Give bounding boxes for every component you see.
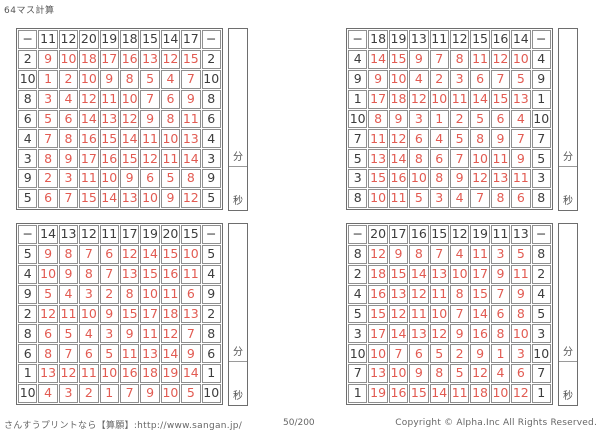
row-header-cell: 4 [348,285,367,304]
answer-cell: 12 [38,305,57,324]
answer-cell: 18 [470,384,489,403]
answer-cell: 9 [140,110,159,129]
answer-cell: 8 [470,129,489,148]
answer-cell: 13 [430,265,449,284]
answer-cell: 13 [389,285,408,304]
col-header-cell: 16 [491,30,510,49]
answer-cell: 15 [368,169,387,188]
answer-cell: 8 [450,50,469,69]
calc-grid: −1112201918151417−2910181716131215210121… [16,28,223,210]
seconds-label: 秒 [233,192,243,207]
row-header-cell: 1 [348,90,367,109]
col-header-cell: 18 [120,30,139,49]
answer-cell: 13 [120,189,139,208]
answer-cell: 11 [470,245,489,264]
row-header-cell: 9 [18,169,37,188]
answer-cell: 9 [38,245,57,264]
answer-cell: 6 [181,285,200,304]
col-header-cell: 17 [120,225,139,244]
copyright-notice: Copyright © Alpha.Inc All Rights Reserve… [395,418,597,428]
page-number: 50/200 [283,418,315,428]
corner-cell: − [348,225,367,244]
col-header-cell: 13 [511,225,530,244]
answer-cell: 7 [120,384,139,403]
answer-cell: 13 [140,344,159,363]
answer-cell: 10 [79,305,98,324]
col-header-cell: 13 [409,30,428,49]
answer-cell: 4 [450,189,469,208]
col-header-cell: 14 [38,225,57,244]
answer-cell: 15 [491,90,510,109]
answer-cell: 18 [140,364,159,383]
answer-cell: 10 [100,169,119,188]
answer-cell: 12 [470,169,489,188]
calc-grid: −1413121117192015−5987612141510541098713… [16,223,223,405]
timer-seconds-cell: 秒 [559,361,577,405]
row-header-cell: 10 [348,110,367,129]
col-header-cell: 17 [181,30,200,49]
row-header-cell: 8 [532,245,551,264]
answer-cell: 1 [38,70,57,89]
answer-cell: 8 [430,364,449,383]
answer-cell: 5 [181,384,200,403]
answer-cell: 10 [161,129,180,148]
answer-cell: 6 [491,110,510,129]
answer-cell: 9 [38,50,57,69]
timer-minutes-cell: 分 [559,29,577,166]
answer-cell: 11 [100,90,119,109]
answer-cell: 17 [100,50,119,69]
answer-cell: 16 [389,169,408,188]
row-header-cell: 2 [348,265,367,284]
answer-cell: 17 [470,265,489,284]
answer-cell: 13 [368,149,387,168]
answer-cell: 12 [120,245,139,264]
answer-cell: 10 [450,265,469,284]
row-header-cell: 5 [532,305,551,324]
row-header-cell: 5 [202,245,221,264]
col-header-cell: 20 [368,225,387,244]
row-header-cell: 6 [18,110,37,129]
answer-cell: 11 [161,285,180,304]
minutes-label: 分 [563,148,573,163]
answer-cell: 1 [100,384,119,403]
row-header-cell: 4 [18,129,37,148]
answer-cell: 13 [181,129,200,148]
answer-cell: 9 [120,169,139,188]
col-header-cell: 14 [161,30,180,49]
answer-cell: 15 [140,265,159,284]
answer-cell: 9 [140,384,159,403]
answer-cell: 16 [120,50,139,69]
answer-cell: 9 [470,344,489,363]
calc-grid: −2017161512191113−8129874113582181514131… [346,223,553,405]
answer-cell: 4 [161,70,180,89]
col-header-cell: 15 [470,30,489,49]
answer-cell: 5 [511,245,530,264]
row-header-cell: 1 [348,384,367,403]
answer-cell: 13 [181,305,200,324]
footer-site-link: さんすうプリントなら【算願】:http://www.sangan.jp/ [4,418,242,431]
answer-cell: 3 [450,70,469,89]
timer-box: 分 秒 [228,223,248,406]
answer-cell: 11 [368,129,387,148]
answer-cell: 17 [140,305,159,324]
answer-cell: 10 [430,305,449,324]
answer-cell: 15 [409,384,428,403]
answer-cell: 10 [100,364,119,383]
answer-cell: 12 [368,245,387,264]
answer-cell: 9 [59,149,78,168]
answer-cell: 12 [389,305,408,324]
row-header-cell: 8 [18,90,37,109]
timer-box: 分 秒 [228,28,248,211]
answer-cell: 15 [389,265,408,284]
corner-cell: − [202,30,221,49]
answer-cell: 5 [430,344,449,363]
col-header-cell: 15 [140,30,159,49]
corner-cell: − [18,225,37,244]
timer-minutes-cell: 分 [229,224,247,361]
answer-cell: 12 [389,129,408,148]
answer-cell: 3 [59,169,78,188]
answer-cell: 10 [470,149,489,168]
answer-cell: 15 [181,50,200,69]
row-header-cell: 8 [202,324,221,343]
answer-cell: 12 [430,324,449,343]
answer-cell: 7 [491,70,510,89]
answer-cell: 6 [100,245,119,264]
answer-cell: 6 [511,189,530,208]
answer-cell: 3 [38,90,57,109]
col-header-cell: 11 [491,225,510,244]
seconds-label: 秒 [563,192,573,207]
answer-cell: 17 [368,90,387,109]
answer-cell: 16 [161,265,180,284]
answer-cell: 10 [491,384,510,403]
calc-grid: −1819131112151614−4141597811121049910423… [346,28,553,210]
col-header-cell: 19 [100,30,119,49]
answer-cell: 8 [491,324,510,343]
answer-cell: 10 [181,245,200,264]
row-header-cell: 10 [348,344,367,363]
grid-group-bottom-left: −1413121117192015−5987612141510541098713… [16,223,223,405]
answer-cell: 15 [389,50,408,69]
answer-cell: 9 [450,324,469,343]
answer-cell: 18 [79,50,98,69]
answer-cell: 1 [491,344,510,363]
answer-cell: 10 [409,169,428,188]
col-header-cell: 11 [430,30,449,49]
answer-cell: 3 [79,285,98,304]
answer-cell: 10 [161,384,180,403]
answer-cell: 6 [79,344,98,363]
row-header-cell: 4 [202,265,221,284]
answer-cell: 6 [511,364,530,383]
row-header-cell: 6 [18,344,37,363]
row-header-cell: 3 [532,169,551,188]
answer-cell: 9 [161,189,180,208]
answer-cell: 12 [120,110,139,129]
answer-cell: 5 [409,189,428,208]
row-header-cell: 10 [532,344,551,363]
col-header-cell: 15 [181,225,200,244]
answer-cell: 10 [389,364,408,383]
timer-seconds-cell: 秒 [559,166,577,210]
answer-cell: 12 [59,364,78,383]
answer-cell: 16 [389,384,408,403]
col-header-cell: 12 [450,30,469,49]
answer-cell: 11 [181,110,200,129]
answer-cell: 12 [409,90,428,109]
answer-cell: 13 [409,324,428,343]
answer-cell: 7 [59,344,78,363]
row-header-cell: 2 [202,305,221,324]
corner-cell: − [202,225,221,244]
answer-cell: 9 [120,324,139,343]
answer-cell: 15 [120,305,139,324]
row-header-cell: 3 [532,324,551,343]
answer-cell: 9 [389,245,408,264]
col-header-cell: 11 [100,225,119,244]
answer-cell: 17 [79,149,98,168]
answer-cell: 5 [38,285,57,304]
answer-cell: 18 [161,305,180,324]
answer-cell: 16 [100,149,119,168]
answer-cell: 8 [409,149,428,168]
answer-cell: 8 [491,189,510,208]
answer-cell: 13 [100,110,119,129]
answer-cell: 10 [368,189,387,208]
col-header-cell: 19 [470,225,489,244]
col-header-cell: 15 [430,225,449,244]
answer-cell: 13 [38,364,57,383]
col-header-cell: 13 [59,225,78,244]
row-header-cell: 9 [202,285,221,304]
answer-cell: 14 [389,324,408,343]
answer-cell: 10 [368,344,387,363]
timer-box: 分 秒 [558,223,578,406]
answer-cell: 7 [389,344,408,363]
answer-cell: 7 [470,189,489,208]
answer-cell: 13 [120,265,139,284]
answer-cell: 6 [409,344,428,363]
row-header-cell: 4 [532,285,551,304]
answer-cell: 7 [181,324,200,343]
answer-cell: 12 [140,149,159,168]
answer-cell: 15 [470,285,489,304]
answer-cell: 9 [450,169,469,188]
answer-cell: 12 [409,285,428,304]
answer-cell: 10 [59,50,78,69]
answer-cell: 8 [511,305,530,324]
answer-cell: 7 [100,265,119,284]
answer-cell: 11 [491,149,510,168]
answer-cell: 7 [140,90,159,109]
answer-cell: 3 [409,110,428,129]
grid-group-top-right: −1819131112151614−4141597811121049910423… [346,28,553,210]
answer-cell: 4 [409,70,428,89]
answer-cell: 4 [430,129,449,148]
answer-cell: 11 [140,129,159,148]
answer-cell: 12 [511,384,530,403]
answer-cell: 6 [409,129,428,148]
answer-cell: 6 [59,110,78,129]
answer-cell: 13 [368,364,387,383]
answer-cell: 4 [450,245,469,264]
row-header-cell: 10 [532,110,551,129]
answer-cell: 9 [511,285,530,304]
row-header-cell: 2 [18,305,37,324]
answer-cell: 6 [140,169,159,188]
answer-cell: 8 [161,110,180,129]
answer-cell: 5 [450,129,469,148]
answer-cell: 11 [450,384,469,403]
corner-cell: − [348,30,367,49]
answer-cell: 3 [491,245,510,264]
answer-cell: 9 [491,129,510,148]
row-header-cell: 8 [202,90,221,109]
answer-cell: 14 [120,129,139,148]
answer-cell: 8 [409,245,428,264]
answer-cell: 6 [430,149,449,168]
answer-cell: 11 [59,305,78,324]
answer-cell: 8 [430,169,449,188]
answer-cell: 18 [368,265,387,284]
answer-cell: 6 [491,305,510,324]
answer-cell: 17 [368,324,387,343]
answer-cell: 10 [120,90,139,109]
row-header-cell: 3 [202,149,221,168]
row-header-cell: 10 [18,70,37,89]
answer-cell: 7 [181,70,200,89]
answer-cell: 8 [450,285,469,304]
answer-cell: 2 [59,70,78,89]
answer-cell: 5 [450,364,469,383]
answer-cell: 9 [100,70,119,89]
answer-cell: 11 [430,285,449,304]
timer-seconds-cell: 秒 [229,361,247,405]
row-header-cell: 7 [348,364,367,383]
answer-cell: 7 [491,285,510,304]
row-header-cell: 4 [532,50,551,69]
seconds-label: 秒 [233,387,243,402]
answer-cell: 5 [161,169,180,188]
row-header-cell: 9 [532,70,551,89]
answer-cell: 5 [100,344,119,363]
answer-cell: 7 [59,189,78,208]
row-header-cell: 9 [348,70,367,89]
row-header-cell: 2 [532,265,551,284]
answer-cell: 12 [181,189,200,208]
answer-cell: 7 [511,129,530,148]
answer-cell: 11 [389,189,408,208]
col-header-cell: 12 [59,30,78,49]
answer-cell: 5 [511,70,530,89]
corner-cell: − [18,30,37,49]
row-header-cell: 3 [348,324,367,343]
col-header-cell: 20 [79,30,98,49]
col-header-cell: 19 [389,30,408,49]
answer-cell: 6 [38,324,57,343]
timer-minutes-cell: 分 [229,29,247,166]
col-header-cell: 11 [38,30,57,49]
answer-cell: 9 [368,70,387,89]
answer-cell: 11 [511,265,530,284]
row-header-cell: 1 [532,90,551,109]
answer-cell: 5 [59,324,78,343]
answer-cell: 16 [470,324,489,343]
answer-cell: 12 [470,364,489,383]
row-header-cell: 5 [348,149,367,168]
answer-cell: 6 [161,90,180,109]
answer-cell: 2 [450,344,469,363]
minutes-label: 分 [233,148,243,163]
answer-cell: 4 [59,285,78,304]
grid-group-top-left: −1112201918151417−2910181716131215210121… [16,28,223,210]
answer-cell: 14 [161,344,180,363]
row-header-cell: 5 [348,305,367,324]
answer-cell: 9 [491,265,510,284]
answer-cell: 4 [491,364,510,383]
answer-cell: 10 [430,90,449,109]
row-header-cell: 8 [348,245,367,264]
answer-cell: 10 [140,285,159,304]
answer-cell: 11 [140,324,159,343]
corner-cell: − [532,30,551,49]
answer-cell: 7 [450,305,469,324]
answer-cell: 15 [368,305,387,324]
row-header-cell: 5 [18,189,37,208]
answer-cell: 10 [38,265,57,284]
answer-cell: 19 [161,364,180,383]
answer-cell: 10 [79,70,98,89]
row-header-cell: 2 [18,50,37,69]
answer-cell: 16 [79,129,98,148]
row-header-cell: 7 [348,129,367,148]
answer-cell: 14 [368,50,387,69]
answer-cell: 13 [140,50,159,69]
answer-cell: 15 [161,245,180,264]
answer-cell: 9 [409,50,428,69]
answer-cell: 16 [368,285,387,304]
answer-cell: 14 [79,110,98,129]
answer-cell: 9 [511,149,530,168]
answer-cell: 6 [38,189,57,208]
answer-cell: 8 [368,110,387,129]
answer-cell: 8 [59,129,78,148]
answer-cell: 15 [120,149,139,168]
answer-cell: 15 [79,189,98,208]
answer-cell: 8 [79,265,98,284]
row-header-cell: 8 [532,189,551,208]
page-title: 64マス計算 [4,3,54,16]
row-header-cell: 3 [18,149,37,168]
row-header-cell: 1 [532,384,551,403]
answer-cell: 7 [430,245,449,264]
row-header-cell: 10 [18,384,37,403]
col-header-cell: 16 [409,225,428,244]
col-header-cell: 14 [511,30,530,49]
answer-cell: 3 [430,189,449,208]
answer-cell: 8 [38,344,57,363]
col-header-cell: 12 [450,225,469,244]
answer-cell: 14 [430,384,449,403]
row-header-cell: 2 [202,50,221,69]
answer-cell: 7 [450,149,469,168]
answer-cell: 4 [38,384,57,403]
answer-cell: 1 [430,110,449,129]
